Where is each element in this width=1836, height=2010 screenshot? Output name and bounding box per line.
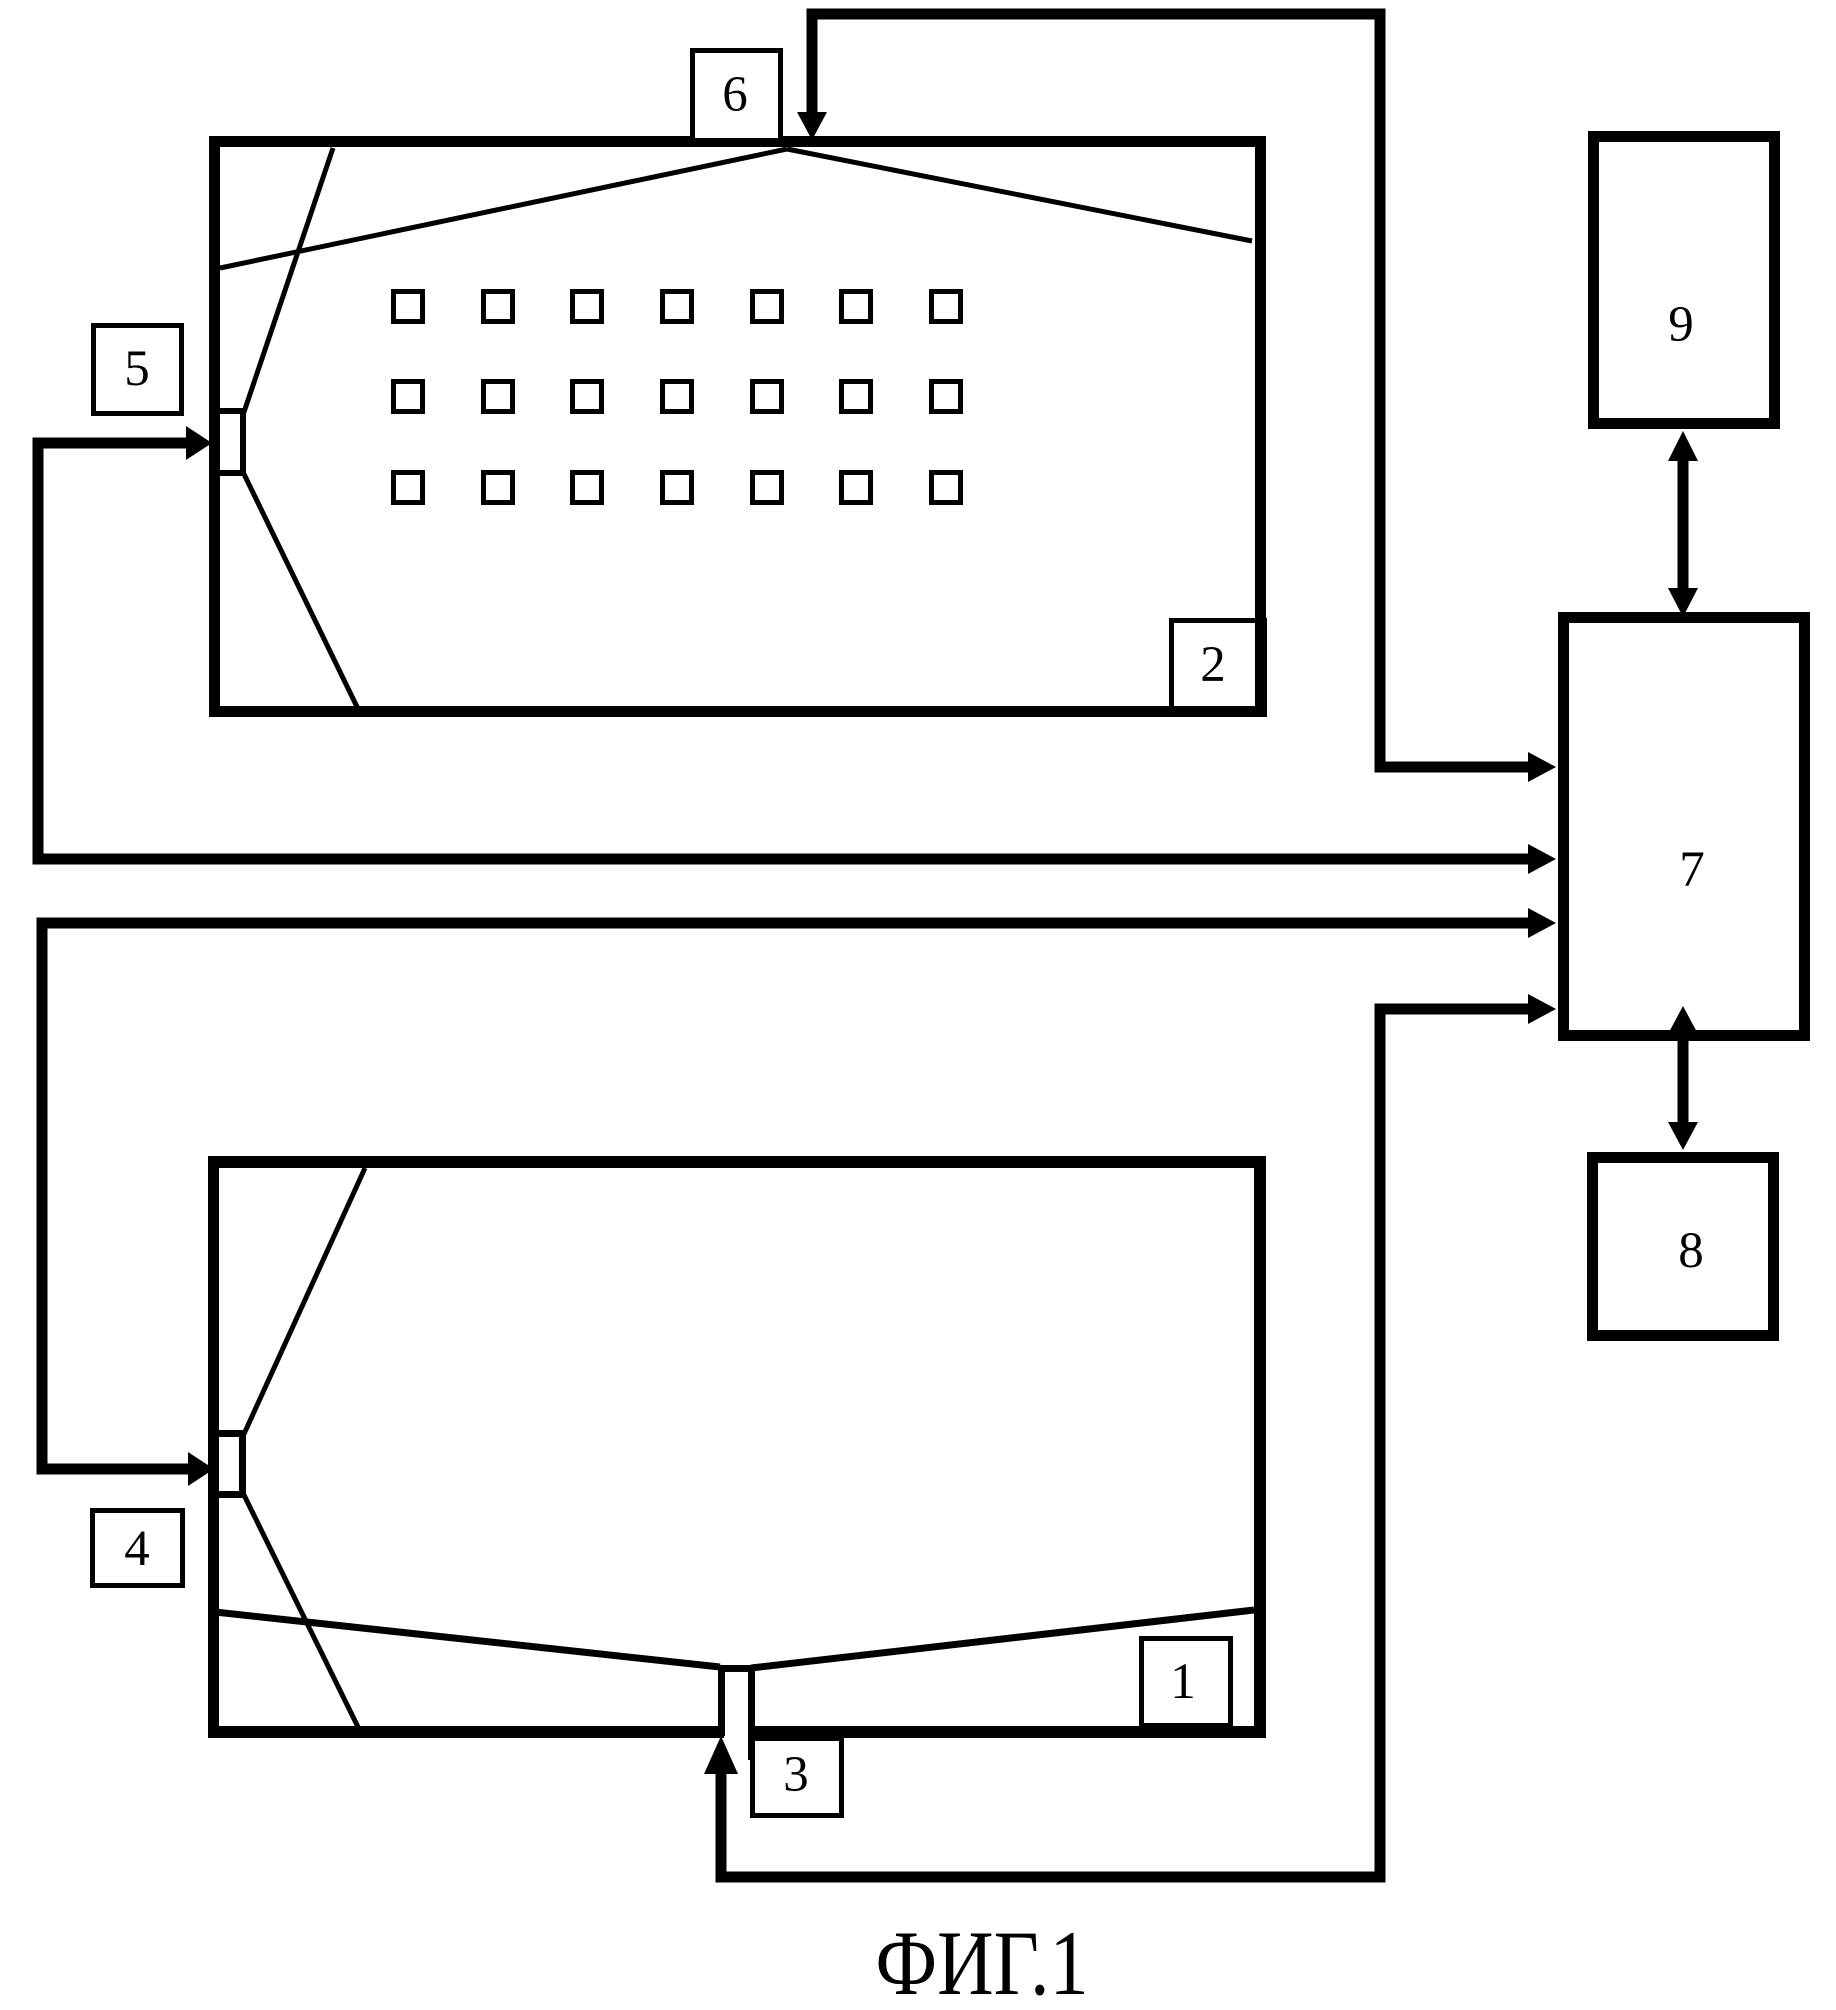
svg-text:4: 4 — [124, 1521, 150, 1577]
svg-text:1: 1 — [1170, 1654, 1196, 1710]
svg-text:3: 3 — [783, 1747, 809, 1803]
svg-text:9: 9 — [1668, 297, 1694, 353]
svg-text:ФИГ.1: ФИГ.1 — [875, 1913, 1088, 2010]
svg-text:7: 7 — [1679, 842, 1705, 898]
svg-text:2: 2 — [1200, 637, 1226, 693]
svg-text:6: 6 — [722, 67, 748, 123]
svg-text:8: 8 — [1678, 1223, 1704, 1279]
svg-text:5: 5 — [124, 341, 150, 397]
